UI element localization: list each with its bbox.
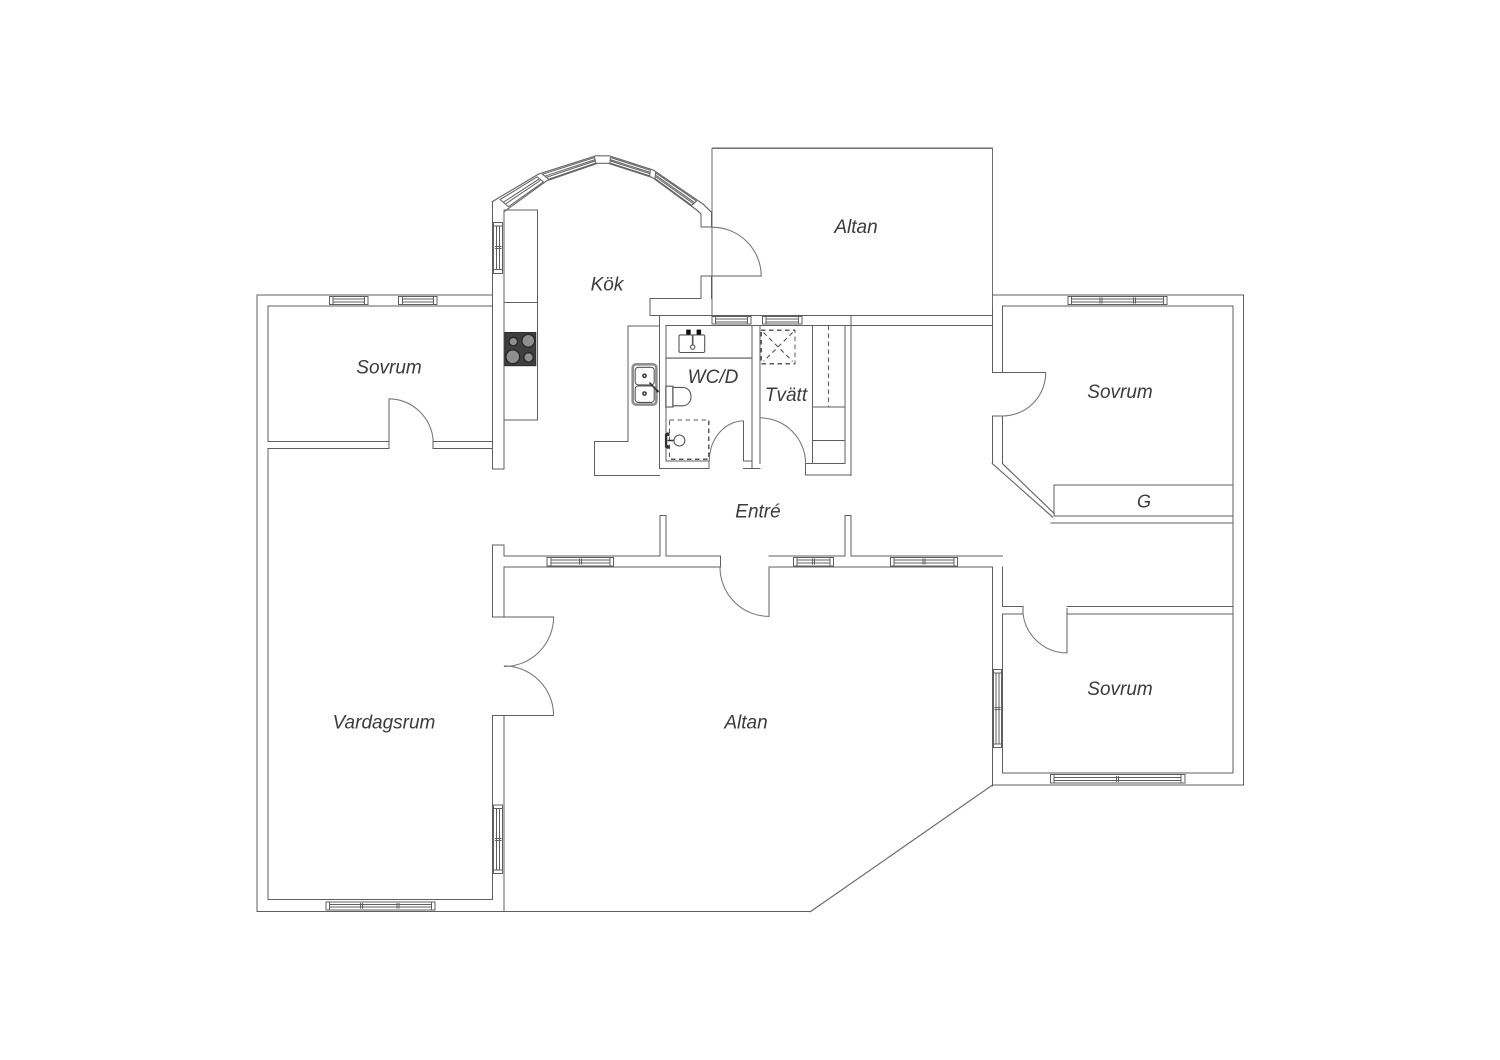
svg-text:Sovrum: Sovrum [356, 358, 421, 379]
svg-text:Kök: Kök [591, 275, 625, 296]
svg-text:Sovrum: Sovrum [1087, 679, 1152, 700]
svg-text:Sovrum: Sovrum [1087, 382, 1152, 403]
svg-text:Entré: Entré [735, 502, 780, 523]
svg-text:WC/D: WC/D [688, 367, 739, 388]
svg-text:Tvätt: Tvätt [765, 385, 808, 406]
svg-text:Altan: Altan [723, 713, 767, 734]
svg-text:Altan: Altan [833, 217, 877, 238]
svg-text:Vardagsrum: Vardagsrum [333, 713, 436, 734]
svg-text:G: G [1137, 492, 1151, 512]
